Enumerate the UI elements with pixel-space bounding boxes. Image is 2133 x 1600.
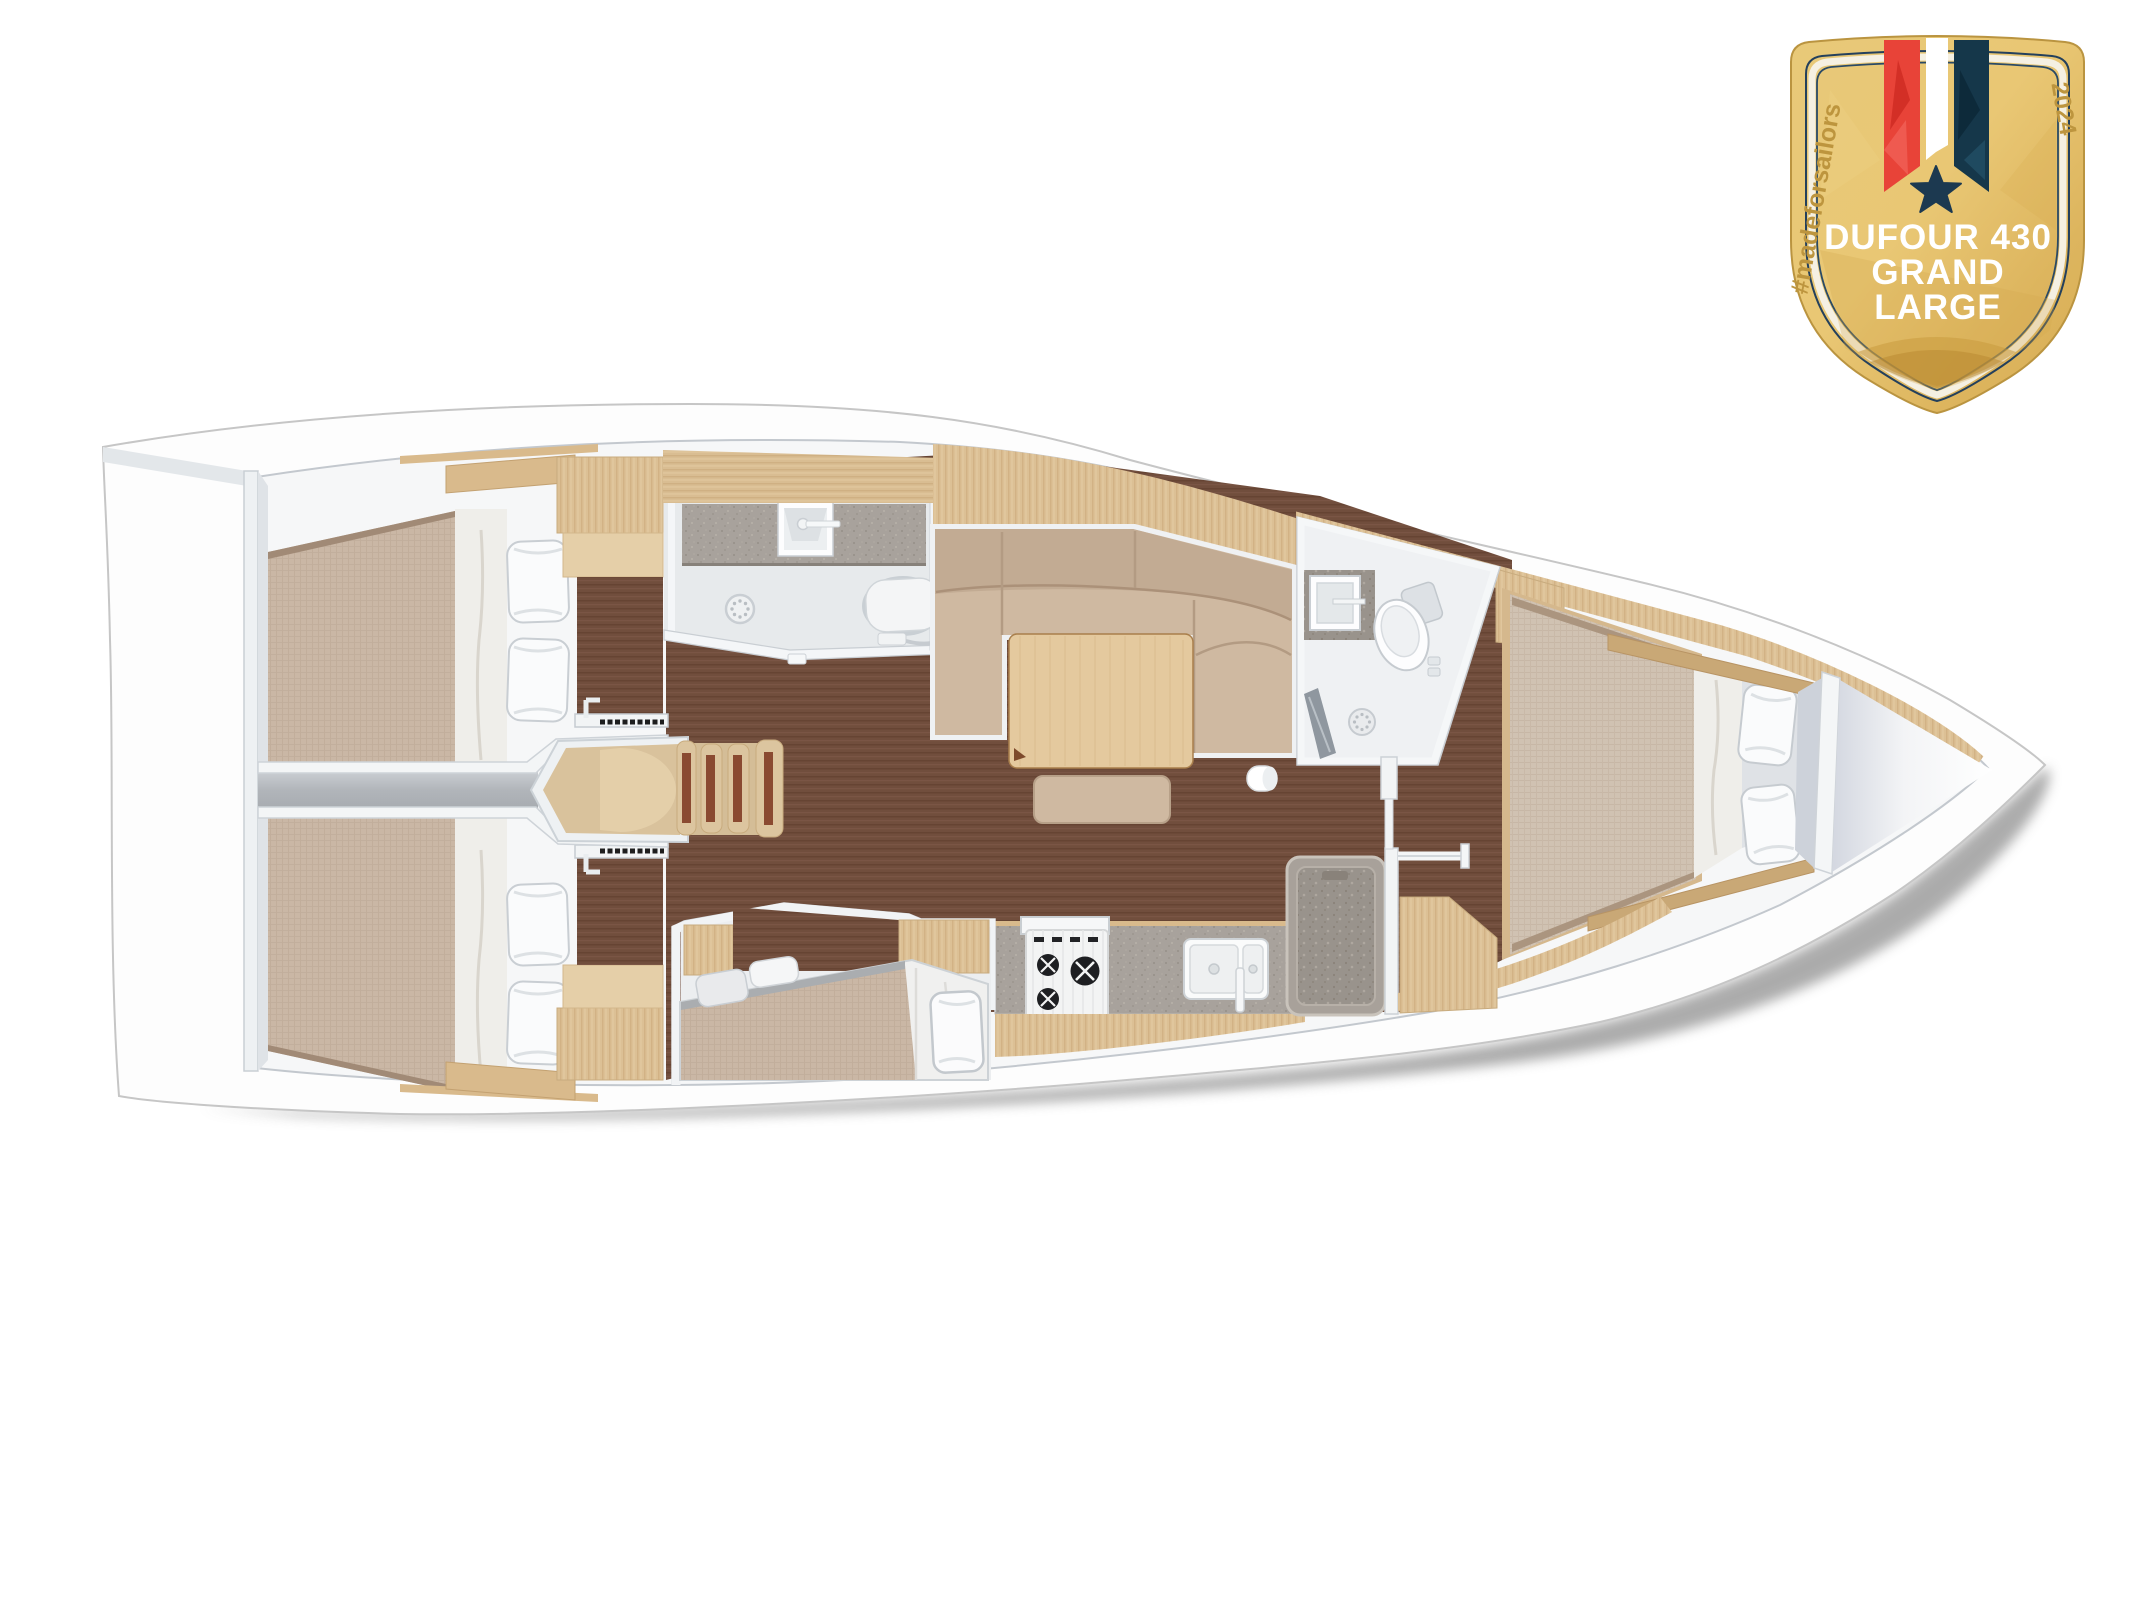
svg-text:GRAND: GRAND [1871, 253, 2004, 292]
svg-text:LARGE: LARGE [1874, 288, 2002, 327]
svg-text:DUFOUR 430: DUFOUR 430 [1824, 218, 2052, 257]
